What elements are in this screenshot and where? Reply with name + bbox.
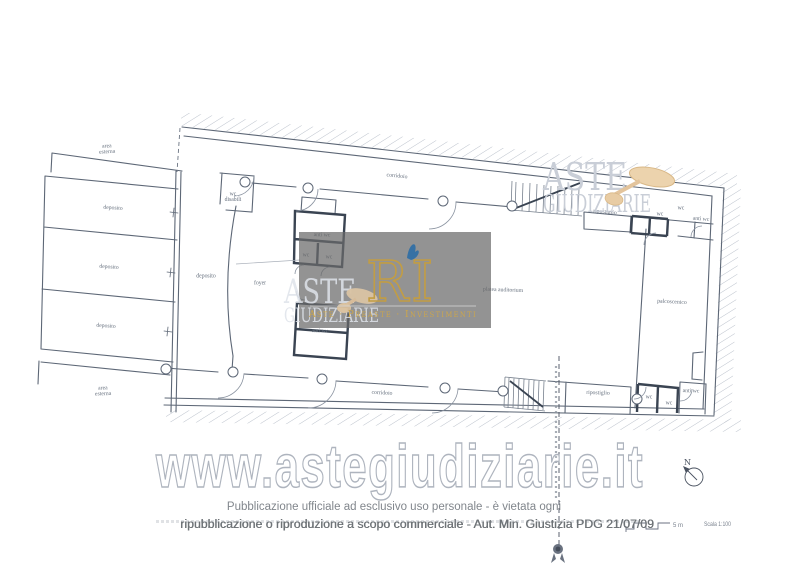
banner-logo: RI [366, 250, 436, 315]
aste-watermark-line2: GIUDIZIARIE [543, 190, 651, 218]
footer-line1: Pubblicazione ufficiale ad esclusivo uso… [194, 501, 594, 513]
aste-giudiziarie-watermark-top: ASTE GIUDIZIARIE [542, 155, 676, 218]
document-page: N 5 m Scala 1:100 areaesternadepositodep… [0, 0, 800, 566]
footer-line2: ripubblicazione o riproduzione a scopo c… [167, 517, 667, 531]
site-watermark: www.astegiudiziarie.it [155, 433, 644, 500]
banner-tagline: Aste · Preaste · Investimenti [308, 309, 477, 320]
watermark-layer: ASTE GIUDIZIARIE ASTE GIUDIZIARIE RI Ast… [0, 0, 800, 566]
